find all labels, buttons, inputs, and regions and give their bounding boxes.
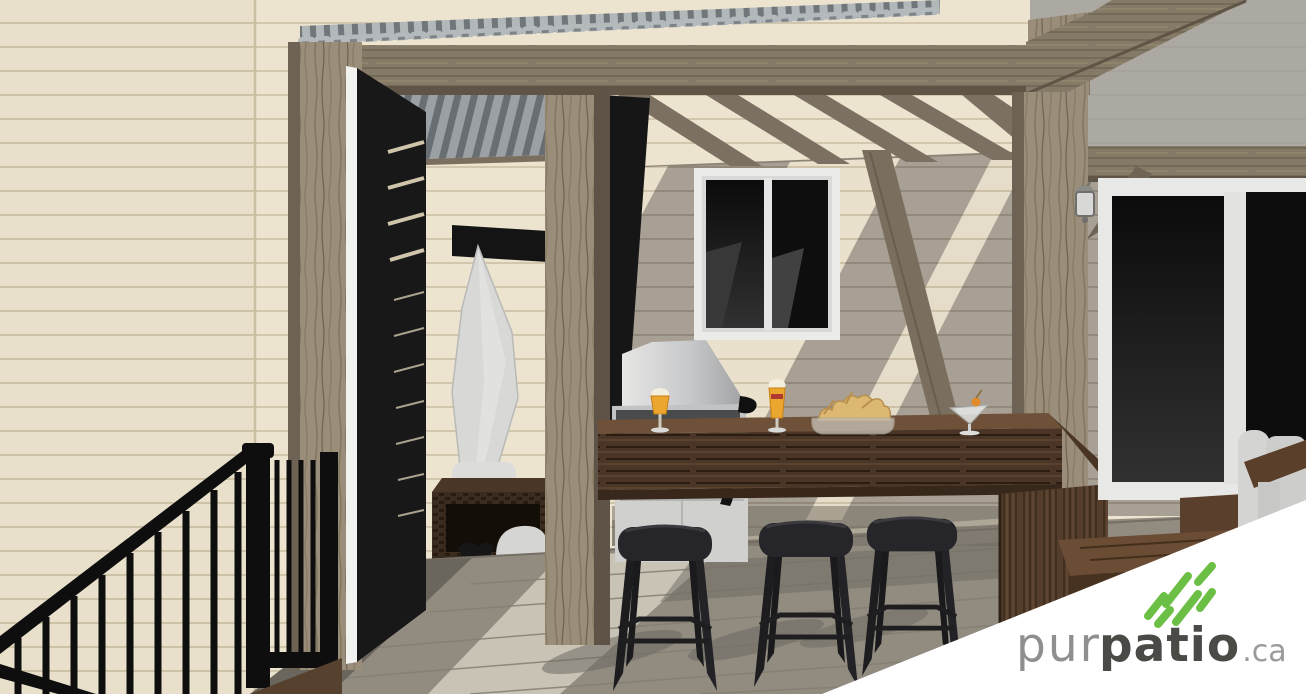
brand-prefix: pur (1016, 622, 1101, 669)
door-edge (346, 66, 357, 664)
scene-canvas (0, 0, 1306, 694)
window (694, 168, 840, 340)
patio-rendering: pur patio .ca (0, 0, 1306, 694)
brand-tld: .ca (1242, 637, 1286, 667)
brand-watermark: pur patio .ca (1016, 622, 1287, 669)
middle-post (545, 95, 610, 645)
privacy-door (346, 66, 426, 664)
towel-rack (452, 225, 548, 262)
brand-name: patio (1099, 622, 1240, 669)
